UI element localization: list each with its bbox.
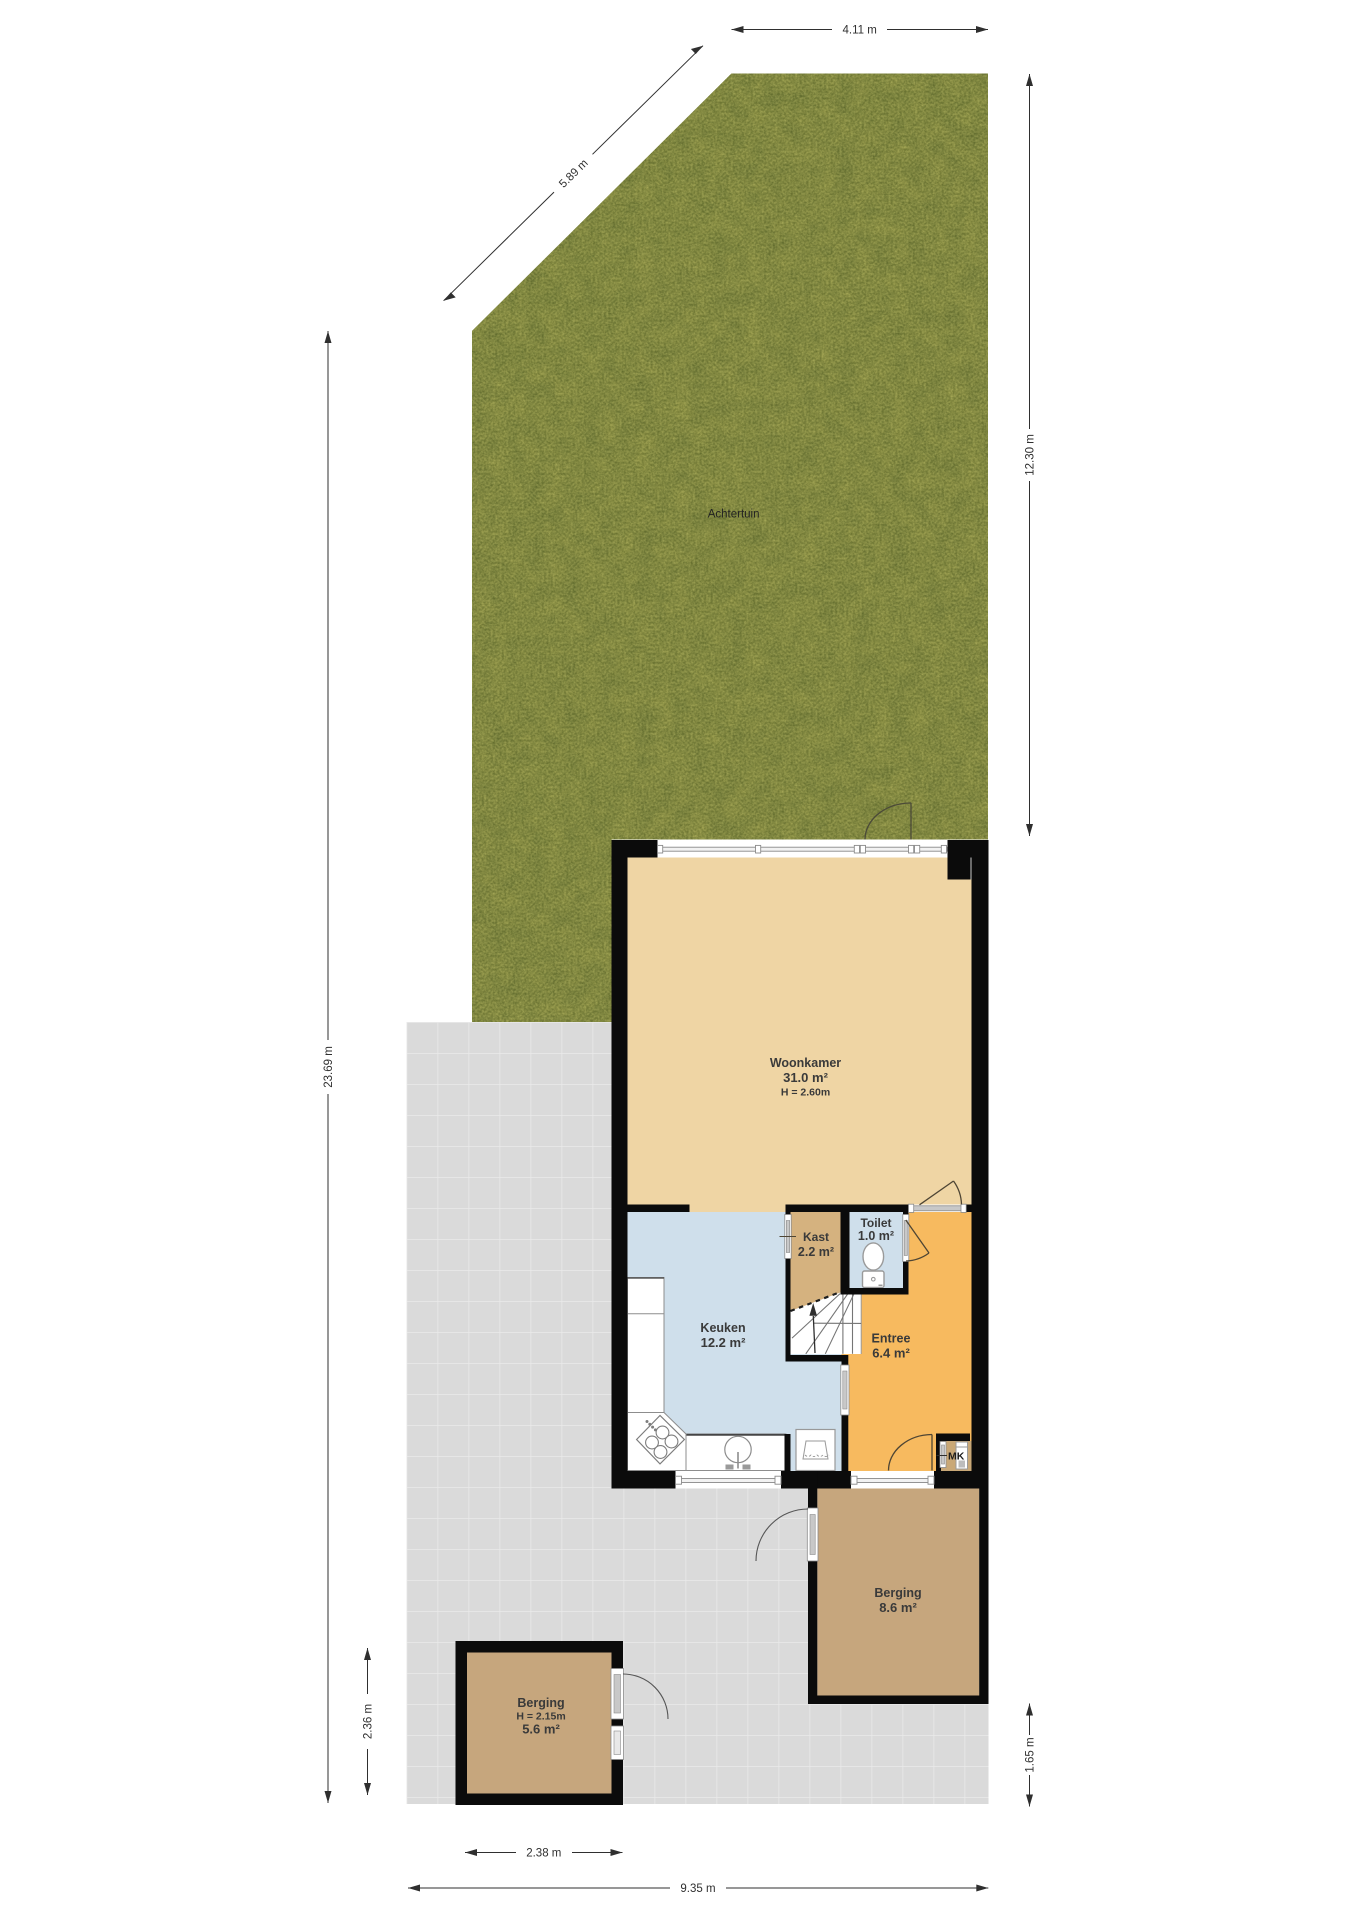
svg-text:2.2 m²: 2.2 m² <box>798 1245 834 1259</box>
svg-text:Achtertuin: Achtertuin <box>708 509 760 521</box>
svg-text:H = 2.60m: H = 2.60m <box>781 1087 830 1099</box>
svg-text:12.30 m: 12.30 m <box>1025 434 1037 476</box>
svg-text:Woonkamer: Woonkamer <box>770 1056 841 1070</box>
svg-text:1.65 m: 1.65 m <box>1025 1737 1037 1772</box>
svg-text:6.4 m²: 6.4 m² <box>872 1346 910 1361</box>
svg-text:23.69 m: 23.69 m <box>323 1046 335 1088</box>
svg-text:5.6 m²: 5.6 m² <box>522 1722 560 1737</box>
svg-text:Berging: Berging <box>874 1586 921 1600</box>
svg-text:8.6 m²: 8.6 m² <box>879 1600 917 1615</box>
svg-text:31.0 m²: 31.0 m² <box>783 1070 828 1085</box>
svg-text:Keuken: Keuken <box>700 1321 745 1335</box>
svg-text:MK: MK <box>948 1451 965 1463</box>
svg-text:Kast: Kast <box>803 1230 829 1244</box>
svg-text:4.11 m: 4.11 m <box>843 25 877 37</box>
svg-text:Entree: Entree <box>872 1332 911 1346</box>
svg-text:2.36 m: 2.36 m <box>363 1704 375 1739</box>
svg-text:Berging: Berging <box>517 1696 564 1710</box>
svg-text:12.2 m²: 12.2 m² <box>701 1335 746 1350</box>
svg-text:2.38 m: 2.38 m <box>526 1848 561 1860</box>
svg-text:Toilet: Toilet <box>860 1216 891 1230</box>
svg-text:9.35 m: 9.35 m <box>680 1883 715 1895</box>
svg-text:1.0 m²: 1.0 m² <box>858 1229 894 1243</box>
